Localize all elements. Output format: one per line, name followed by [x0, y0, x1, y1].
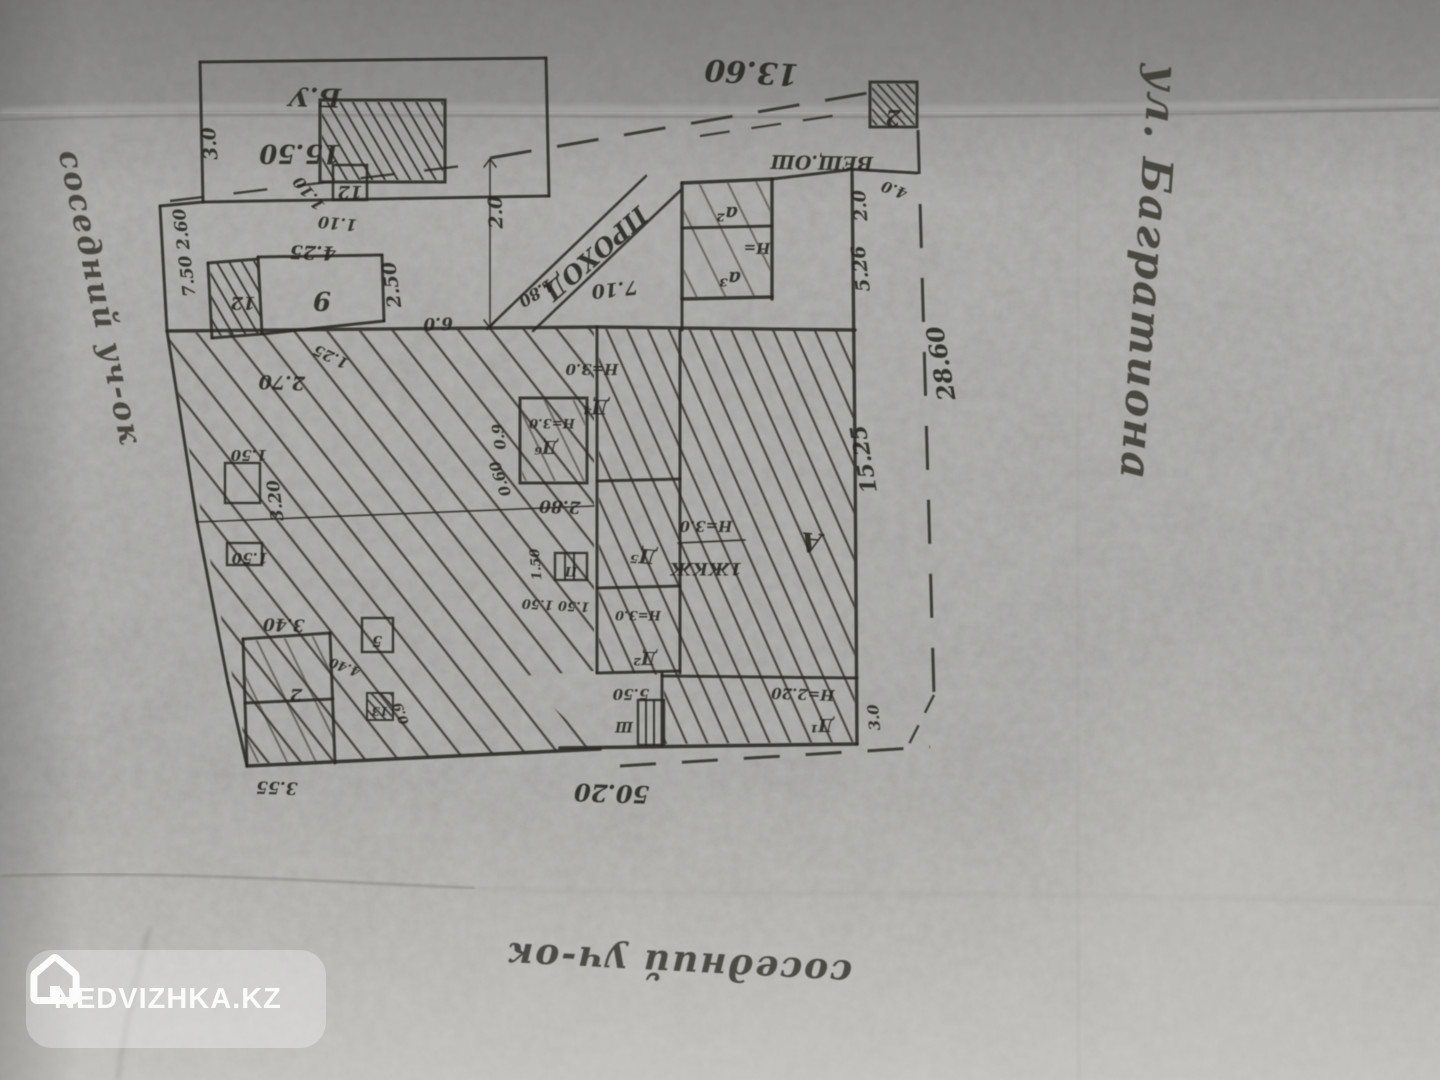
plan-label: Д⁶ — [534, 436, 559, 457]
plan-label: Н= — [744, 239, 772, 257]
plan-label: Д² — [633, 647, 658, 668]
plan-label: Д⁴ — [583, 395, 611, 419]
plan-label: 13 — [372, 704, 389, 718]
wall-line — [682, 297, 772, 299]
wall-line — [597, 479, 680, 481]
site-plan-drawing: 13.602Б.У15.503.0121.101.104.252.09122.5… — [0, 0, 1440, 1080]
plan-label: 2.0 — [849, 188, 873, 222]
plan-label: Н=3.0 — [679, 517, 733, 535]
plan-label: Н=2.20 — [770, 684, 835, 704]
plan-label: 15.50 — [259, 138, 340, 168]
wall-line — [597, 671, 680, 673]
plan-label: 4.25 — [289, 240, 336, 264]
plan-label: Н=3.0 — [565, 360, 619, 378]
plan-label: 2.70 — [258, 370, 306, 394]
plan-label: 5 — [372, 632, 382, 650]
plan-label: 2.0 — [484, 195, 507, 230]
plan-label: а³ — [719, 267, 741, 291]
plan-label: А — [799, 525, 826, 558]
plan-label: 0.9 — [488, 422, 510, 451]
plan-label: Б.У — [286, 80, 342, 112]
wall-line — [490, 327, 597, 328]
plan-label: 3.55 — [256, 776, 298, 797]
wall-line — [662, 676, 857, 678]
plan-label: 1ЖКЖ — [669, 558, 742, 578]
plan-label: Д⁵ — [629, 543, 659, 569]
plan-label: 12 — [337, 181, 362, 202]
plan-label: П — [564, 563, 578, 578]
plan-label: 3.0 — [864, 703, 884, 731]
plan-label: 1.50 — [528, 548, 546, 581]
plan-label: 2 — [290, 684, 304, 705]
plan-label: 9 — [313, 285, 331, 315]
plan-label: Д¹ — [810, 714, 835, 735]
plan-label: а² — [716, 202, 738, 226]
plan-label: ВЕЩ.ОШ — [770, 150, 875, 174]
plan-label: 6.0 — [423, 312, 453, 333]
plan-label: Н=3.0 — [529, 415, 576, 430]
plan-label: 2 — [885, 104, 901, 130]
nedvizhka-watermark: NEDVIZHKA.KZ — [26, 950, 326, 1048]
plan-label: 3.0 — [198, 126, 223, 161]
plan-label: 50.20 — [573, 778, 649, 810]
plan-label: 3.40 — [263, 613, 305, 634]
plan-label: Ш — [614, 718, 634, 734]
plan-label: 1.50 — [231, 549, 268, 567]
plan-label: 13.60 — [704, 52, 800, 92]
scanned-site-plan-photo: 13.602Б.У15.503.0121.101.104.252.09122.5… — [0, 0, 1440, 1080]
plan-label: 1.50 — [230, 446, 267, 464]
plan-label: 2.80 — [539, 495, 582, 516]
plan-label: 12 — [230, 292, 255, 313]
plan-label: Н=3.0 — [615, 607, 662, 622]
plan-label: 5.50 — [612, 685, 649, 703]
plan-label: 1.10 — [317, 212, 357, 234]
watermark-label: NEDVIZHKA.KZ — [54, 983, 282, 1016]
wall-line — [597, 586, 680, 588]
